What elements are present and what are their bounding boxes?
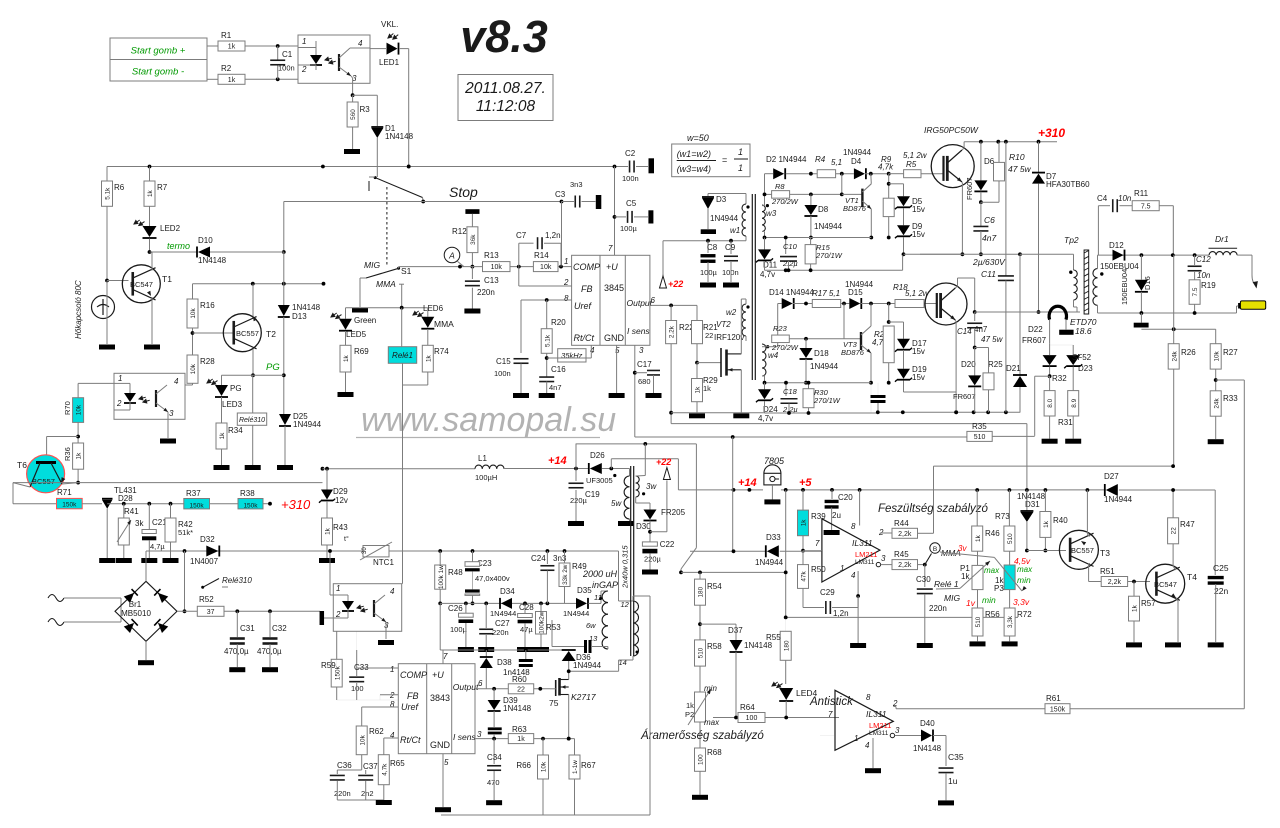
svg-text:C24: C24 xyxy=(531,554,546,563)
svg-text:R60: R60 xyxy=(512,675,527,684)
svg-text:Rt/Ct: Rt/Ct xyxy=(400,735,421,745)
svg-text:R61: R61 xyxy=(1046,694,1061,703)
svg-text:1N4944: 1N4944 xyxy=(710,214,739,223)
svg-text:22: 22 xyxy=(1171,527,1178,535)
svg-text:Uref: Uref xyxy=(574,301,593,311)
svg-text:1k: 1k xyxy=(686,701,694,710)
svg-text:510: 510 xyxy=(1007,533,1014,544)
svg-text:7: 7 xyxy=(608,244,613,253)
svg-text:7805: 7805 xyxy=(764,456,785,466)
svg-text:D11: D11 xyxy=(763,261,778,270)
svg-text:LED5: LED5 xyxy=(346,330,367,339)
svg-text:150k: 150k xyxy=(62,502,77,509)
svg-text:inGAP: inGAP xyxy=(592,580,618,590)
svg-text:R11: R11 xyxy=(1134,189,1149,198)
svg-text:D29: D29 xyxy=(333,487,348,496)
svg-text:T3: T3 xyxy=(1100,548,1110,558)
svg-text:1k: 1k xyxy=(147,189,154,197)
svg-text:180: 180 xyxy=(698,586,705,597)
svg-text:Uref: Uref xyxy=(401,702,420,712)
svg-text:R34: R34 xyxy=(228,426,243,435)
svg-text:47k: 47k xyxy=(801,571,808,582)
svg-text:8: 8 xyxy=(390,700,395,709)
svg-text:2u: 2u xyxy=(832,511,841,520)
svg-text:R16: R16 xyxy=(200,301,215,310)
svg-text:IRF120v: IRF120v xyxy=(714,333,744,342)
svg-text:7.5: 7.5 xyxy=(1192,287,1199,296)
svg-text:LED1: LED1 xyxy=(379,58,400,67)
svg-text:R37: R37 xyxy=(186,489,201,498)
svg-text:3: 3 xyxy=(477,730,482,739)
svg-text:1N4148: 1N4148 xyxy=(744,641,773,650)
svg-text:C14: C14 xyxy=(957,327,972,336)
svg-text:R31: R31 xyxy=(1058,418,1073,427)
svg-text:BC547: BC547 xyxy=(1154,580,1177,589)
svg-text:4n7: 4n7 xyxy=(549,383,562,392)
svg-text:D21: D21 xyxy=(1006,364,1021,373)
svg-text:15v: 15v xyxy=(912,230,925,239)
svg-text:560: 560 xyxy=(350,109,357,120)
svg-text:2: 2 xyxy=(301,65,307,74)
svg-text:3n3: 3n3 xyxy=(570,180,583,189)
svg-text:C22: C22 xyxy=(660,540,675,549)
svg-text:1k: 1k xyxy=(517,736,525,743)
svg-text:1k: 1k xyxy=(76,452,83,460)
svg-text:2011.08.27.: 2011.08.27. xyxy=(464,80,546,97)
svg-text:24k: 24k xyxy=(1213,398,1220,409)
svg-text:D28: D28 xyxy=(118,494,133,503)
svg-text:v8.3: v8.3 xyxy=(460,11,548,62)
svg-text:BD876: BD876 xyxy=(841,348,865,357)
svg-text:C2: C2 xyxy=(625,149,636,158)
svg-text:max: max xyxy=(1017,565,1033,574)
svg-text:1k: 1k xyxy=(228,77,236,84)
svg-text:Br1: Br1 xyxy=(129,600,142,609)
svg-text:6: 6 xyxy=(651,296,656,305)
svg-text:1,2n: 1,2n xyxy=(833,609,849,618)
svg-text:Hőkapcsoló 80C: Hőkapcsoló 80C xyxy=(74,280,83,339)
svg-text:C32: C32 xyxy=(272,624,287,633)
svg-text:D4: D4 xyxy=(851,157,862,166)
svg-text:GND: GND xyxy=(430,740,451,750)
svg-text:D16: D16 xyxy=(1143,276,1152,290)
svg-text:R23: R23 xyxy=(773,324,788,333)
svg-text:220n: 220n xyxy=(929,604,947,613)
svg-text:37: 37 xyxy=(207,609,215,616)
svg-text:BC557: BC557 xyxy=(32,477,55,486)
svg-text:R56: R56 xyxy=(985,610,1000,619)
svg-text:2.2µ: 2.2µ xyxy=(782,259,798,268)
svg-text:R28: R28 xyxy=(200,357,215,366)
svg-text:7: 7 xyxy=(828,710,833,719)
svg-text:C31: C31 xyxy=(240,624,255,633)
svg-text:10k: 10k xyxy=(1213,350,1220,361)
svg-text:220n: 220n xyxy=(477,288,495,297)
svg-text:termo: termo xyxy=(167,241,190,251)
svg-text:C3: C3 xyxy=(555,190,566,199)
svg-text:11:12:08: 11:12:08 xyxy=(476,98,536,115)
svg-text:3: 3 xyxy=(895,726,900,735)
svg-text:1v: 1v xyxy=(966,598,976,608)
svg-text:R55: R55 xyxy=(766,633,781,642)
svg-text:D33: D33 xyxy=(766,533,781,542)
svg-text:2,2k: 2,2k xyxy=(1108,579,1122,586)
svg-text:100: 100 xyxy=(351,684,364,693)
svg-text:R36: R36 xyxy=(63,447,72,461)
svg-text:C7: C7 xyxy=(516,231,527,240)
svg-text:+U: +U xyxy=(432,670,444,680)
svg-text:D10: D10 xyxy=(198,236,213,245)
svg-text:R13: R13 xyxy=(484,251,499,260)
svg-text:Antistick: Antistick xyxy=(809,696,854,708)
svg-text:7.5: 7.5 xyxy=(1141,203,1151,210)
svg-text:4: 4 xyxy=(390,587,395,596)
svg-text:C17: C17 xyxy=(637,360,652,369)
svg-text:+310: +310 xyxy=(281,497,311,512)
svg-text:510: 510 xyxy=(974,434,986,441)
svg-text:Stop: Stop xyxy=(449,184,478,200)
svg-text:C34: C34 xyxy=(487,753,502,762)
svg-text:4: 4 xyxy=(590,346,595,355)
svg-text:10k: 10k xyxy=(541,761,548,772)
svg-text:4: 4 xyxy=(851,571,856,580)
svg-text:VKL.: VKL. xyxy=(381,20,398,29)
svg-text:680: 680 xyxy=(638,377,651,386)
svg-text:D26: D26 xyxy=(590,451,605,460)
svg-text:1N4944: 1N4944 xyxy=(563,609,589,618)
svg-text:3: 3 xyxy=(169,409,174,418)
svg-text:1N4148: 1N4148 xyxy=(292,303,321,312)
svg-text:3: 3 xyxy=(639,346,644,355)
svg-text:D32: D32 xyxy=(200,535,215,544)
svg-text:47,0x400v: 47,0x400v xyxy=(475,574,510,583)
svg-text:270/1W: 270/1W xyxy=(813,396,841,405)
svg-text:R17 5,1: R17 5,1 xyxy=(812,289,840,298)
svg-text:MMA: MMA xyxy=(376,279,396,289)
svg-text:Output: Output xyxy=(453,682,479,692)
svg-text:w1: w1 xyxy=(730,226,740,235)
svg-text:2,2k: 2,2k xyxy=(898,562,912,569)
svg-text:7: 7 xyxy=(443,652,448,661)
svg-text:C36: C36 xyxy=(337,761,352,770)
svg-text:w4: w4 xyxy=(768,351,779,360)
svg-text:3v: 3v xyxy=(958,544,967,553)
svg-text:2x40w 0,315: 2x40w 0,315 xyxy=(621,545,630,589)
svg-text:Start gomb +: Start gomb + xyxy=(131,46,186,57)
svg-text:4,7v: 4,7v xyxy=(760,270,775,279)
svg-text:1-1w: 1-1w xyxy=(572,760,579,774)
svg-text:1N4944: 1N4944 xyxy=(755,558,784,567)
svg-text:BC557: BC557 xyxy=(1071,546,1094,555)
svg-text:C6: C6 xyxy=(984,215,995,225)
svg-text:C25: C25 xyxy=(1213,563,1229,573)
svg-text:C9: C9 xyxy=(725,243,736,252)
svg-text:HFA30TB60: HFA30TB60 xyxy=(1046,180,1090,189)
svg-text:max: max xyxy=(984,566,1000,575)
svg-text:R70: R70 xyxy=(63,401,72,415)
svg-text:D3: D3 xyxy=(716,195,727,204)
svg-text:R58: R58 xyxy=(707,642,722,651)
svg-text:1k: 1k xyxy=(325,527,332,535)
svg-text:3,3k: 3,3k xyxy=(1007,615,1014,628)
svg-text:47µ: 47µ xyxy=(520,625,533,634)
svg-text:1N4944: 1N4944 xyxy=(814,222,843,231)
svg-text:1: 1 xyxy=(738,163,743,173)
svg-text:100n: 100n xyxy=(722,268,739,277)
svg-text:w=50: w=50 xyxy=(687,133,709,143)
svg-text:R53: R53 xyxy=(546,623,561,632)
svg-text:2: 2 xyxy=(116,399,122,408)
svg-text:Áramerősség szabályzó: Áramerősség szabályzó xyxy=(640,729,764,742)
svg-text:1N4944: 1N4944 xyxy=(810,362,839,371)
svg-text:1N4148: 1N4148 xyxy=(385,132,414,141)
svg-text:R74: R74 xyxy=(434,347,449,356)
svg-text:FB: FB xyxy=(581,284,593,294)
svg-text:R19: R19 xyxy=(1201,281,1216,290)
svg-text:R10: R10 xyxy=(1009,152,1025,162)
svg-text:5,1 2w: 5,1 2w xyxy=(903,151,928,160)
svg-text:1: 1 xyxy=(738,147,743,157)
svg-text:FB: FB xyxy=(407,691,419,701)
svg-text:150k: 150k xyxy=(190,502,205,509)
svg-text:150k: 150k xyxy=(243,502,258,509)
svg-text:R44: R44 xyxy=(894,519,909,528)
svg-text:1: 1 xyxy=(336,584,340,593)
svg-text:1: 1 xyxy=(390,665,394,674)
svg-text:R3: R3 xyxy=(360,105,371,114)
svg-text:C28: C28 xyxy=(519,603,534,612)
svg-text:510: 510 xyxy=(975,616,982,627)
svg-text:8.0: 8.0 xyxy=(1047,398,1054,407)
svg-text:2,2k: 2,2k xyxy=(898,531,912,538)
svg-text:R26: R26 xyxy=(1181,348,1196,357)
svg-text:R52: R52 xyxy=(199,595,214,604)
svg-text:MMA: MMA xyxy=(434,319,454,329)
svg-text:220µ: 220µ xyxy=(644,555,662,564)
svg-text:S1: S1 xyxy=(401,266,412,276)
svg-text:min: min xyxy=(704,684,717,693)
svg-text:1N4944: 1N4944 xyxy=(490,609,516,618)
svg-text:150k: 150k xyxy=(1050,706,1066,713)
svg-text:R71: R71 xyxy=(57,488,72,497)
svg-text:5w: 5w xyxy=(611,499,622,508)
svg-text:22: 22 xyxy=(705,331,713,340)
svg-text:100k2w: 100k2w xyxy=(539,611,546,633)
svg-text:15v: 15v xyxy=(912,347,925,356)
svg-text:C18: C18 xyxy=(783,387,798,396)
svg-text:1u: 1u xyxy=(948,776,958,786)
svg-text:BC557: BC557 xyxy=(236,329,259,338)
svg-text:C5: C5 xyxy=(626,199,637,208)
svg-text:4,7v: 4,7v xyxy=(758,414,773,423)
svg-text:PG: PG xyxy=(230,384,242,393)
svg-text:SF52: SF52 xyxy=(1072,353,1092,362)
svg-text:+14: +14 xyxy=(738,477,757,489)
svg-text:R2: R2 xyxy=(221,64,232,73)
svg-text:C13: C13 xyxy=(484,276,499,285)
svg-text:A: A xyxy=(448,251,455,261)
svg-text:R4: R4 xyxy=(815,155,826,164)
svg-text:D13: D13 xyxy=(292,312,307,321)
svg-text:270/1W: 270/1W xyxy=(815,251,843,260)
svg-text:R32: R32 xyxy=(1052,374,1067,383)
svg-text:22: 22 xyxy=(517,686,525,693)
svg-text:2000 uH: 2000 uH xyxy=(582,569,618,579)
svg-text:R35: R35 xyxy=(972,422,987,431)
svg-text:18.6: 18.6 xyxy=(1075,326,1092,336)
svg-text:R41: R41 xyxy=(124,507,139,516)
svg-text:+22: +22 xyxy=(668,279,683,289)
svg-text:D35: D35 xyxy=(577,586,592,595)
svg-text:8: 8 xyxy=(866,693,871,702)
svg-text:4n7: 4n7 xyxy=(982,233,996,243)
svg-text:2: 2 xyxy=(389,691,395,700)
svg-text:4,7k: 4,7k xyxy=(878,163,894,172)
svg-text:12v: 12v xyxy=(335,496,348,505)
svg-text:T2: T2 xyxy=(266,329,276,339)
svg-text:100n: 100n xyxy=(494,369,511,378)
svg-text:K2717: K2717 xyxy=(571,692,596,702)
svg-text:P2: P2 xyxy=(685,710,694,719)
svg-text:IRG50PC50W: IRG50PC50W xyxy=(924,125,979,135)
svg-text:100µH: 100µH xyxy=(475,473,497,482)
svg-text:1N4148: 1N4148 xyxy=(198,256,227,265)
svg-text:R12: R12 xyxy=(452,227,467,236)
svg-text:R45: R45 xyxy=(894,550,909,559)
svg-text:IL311: IL311 xyxy=(866,709,887,719)
svg-text:R64: R64 xyxy=(740,703,755,712)
svg-text:LM311: LM311 xyxy=(855,559,875,566)
svg-text:(w1=w2): (w1=w2) xyxy=(677,149,711,159)
svg-text:D15: D15 xyxy=(848,288,863,297)
svg-text:P3: P3 xyxy=(994,584,1004,593)
svg-text:Relé1: Relé1 xyxy=(392,351,413,360)
svg-text:2µ/630V: 2µ/630V xyxy=(972,257,1006,267)
svg-text:C11: C11 xyxy=(981,269,996,279)
svg-text:R65: R65 xyxy=(390,759,405,768)
svg-text:12: 12 xyxy=(621,600,630,609)
svg-text:100: 100 xyxy=(746,715,758,722)
svg-text:t°: t° xyxy=(344,535,349,543)
svg-text:R62: R62 xyxy=(369,727,384,736)
svg-text:MIG: MIG xyxy=(944,593,960,603)
svg-text:R1: R1 xyxy=(221,31,232,40)
svg-text:3845: 3845 xyxy=(604,283,624,293)
svg-text:R25: R25 xyxy=(988,360,1003,369)
svg-text:100n: 100n xyxy=(622,174,639,183)
svg-text:5.1k: 5.1k xyxy=(105,187,112,200)
svg-text:C29: C29 xyxy=(820,588,835,597)
svg-text:R72: R72 xyxy=(1017,610,1032,619)
svg-text:1N4944: 1N4944 xyxy=(293,420,322,429)
svg-text:C26: C26 xyxy=(448,604,463,613)
svg-text:1k: 1k xyxy=(975,534,982,542)
svg-text:4,7µ: 4,7µ xyxy=(150,542,165,551)
svg-text:C20: C20 xyxy=(838,493,853,502)
svg-text:10k: 10k xyxy=(190,363,197,374)
svg-text:D27: D27 xyxy=(1104,472,1119,481)
svg-text:C30: C30 xyxy=(916,575,931,584)
svg-text:MB5010: MB5010 xyxy=(121,609,151,618)
svg-text:47 5w: 47 5w xyxy=(1008,164,1032,174)
svg-text:3,3v: 3,3v xyxy=(1013,597,1030,607)
svg-text:R50: R50 xyxy=(811,565,826,574)
svg-text:14: 14 xyxy=(619,658,627,667)
svg-text:(w3=w4): (w3=w4) xyxy=(677,164,711,174)
svg-text:4n7: 4n7 xyxy=(974,325,988,334)
svg-text:+22: +22 xyxy=(656,457,671,467)
svg-text:R68: R68 xyxy=(707,748,722,757)
svg-text:T1: T1 xyxy=(162,274,172,284)
svg-text:30: 30 xyxy=(362,547,368,554)
svg-text:FR607: FR607 xyxy=(953,392,976,401)
svg-text:BD876: BD876 xyxy=(843,204,867,213)
svg-text:100µ: 100µ xyxy=(700,268,718,277)
svg-text:4: 4 xyxy=(865,741,870,750)
svg-text:36k: 36k xyxy=(470,234,477,245)
svg-text:R20: R20 xyxy=(551,318,566,327)
svg-text:2: 2 xyxy=(563,278,569,287)
svg-text:470: 470 xyxy=(487,778,500,787)
svg-text:R40: R40 xyxy=(1053,516,1068,525)
svg-text:8: 8 xyxy=(564,294,569,303)
svg-text:R59: R59 xyxy=(321,661,336,670)
svg-text:VT2: VT2 xyxy=(716,320,731,329)
svg-text:2n2: 2n2 xyxy=(361,789,374,798)
svg-text:D8: D8 xyxy=(818,205,829,214)
svg-text:D14 1N4944: D14 1N4944 xyxy=(769,288,814,297)
svg-text:Tp2: Tp2 xyxy=(1064,235,1079,245)
svg-text:47 5w: 47 5w xyxy=(981,335,1004,344)
svg-text:10n: 10n xyxy=(1197,271,1211,280)
svg-text:max: max xyxy=(704,718,720,727)
svg-text:15v: 15v xyxy=(912,205,925,214)
svg-text:w3: w3 xyxy=(766,209,777,218)
svg-text:1N4944: 1N4944 xyxy=(843,148,872,157)
svg-text:1N4007: 1N4007 xyxy=(190,557,219,566)
svg-text:Green: Green xyxy=(354,316,376,325)
svg-text:R8: R8 xyxy=(775,182,785,191)
svg-text:1k: 1k xyxy=(1132,604,1139,612)
svg-text:L1: L1 xyxy=(478,454,487,463)
svg-text:Relé310: Relé310 xyxy=(239,417,265,424)
svg-text:1N4944: 1N4944 xyxy=(573,661,602,670)
svg-text:4: 4 xyxy=(358,39,363,48)
svg-text:100µ: 100µ xyxy=(620,224,638,233)
svg-text:MIG: MIG xyxy=(364,260,380,270)
svg-text:1k: 1k xyxy=(228,44,236,51)
svg-text:D34: D34 xyxy=(500,587,515,596)
svg-text:R5: R5 xyxy=(906,160,917,169)
svg-text:Relé 1: Relé 1 xyxy=(934,579,959,589)
svg-text:R14: R14 xyxy=(534,251,549,260)
svg-text:R38: R38 xyxy=(240,489,255,498)
svg-text:PG: PG xyxy=(266,362,280,373)
svg-text:150EBU04: 150EBU04 xyxy=(1120,269,1129,305)
svg-text:1: 1 xyxy=(564,257,568,266)
svg-text:LM211: LM211 xyxy=(869,721,891,730)
svg-text:D30: D30 xyxy=(636,522,651,531)
svg-text:LM311: LM311 xyxy=(869,730,889,737)
svg-text:1,2n: 1,2n xyxy=(545,231,561,240)
svg-text:35kHz: 35kHz xyxy=(561,351,583,360)
svg-text:1: 1 xyxy=(854,734,858,743)
svg-text:LM211: LM211 xyxy=(855,550,877,559)
svg-text:10k: 10k xyxy=(540,264,552,271)
svg-text:15v: 15v xyxy=(912,373,925,382)
svg-text:C8: C8 xyxy=(707,243,718,252)
svg-text:4: 4 xyxy=(390,731,395,740)
